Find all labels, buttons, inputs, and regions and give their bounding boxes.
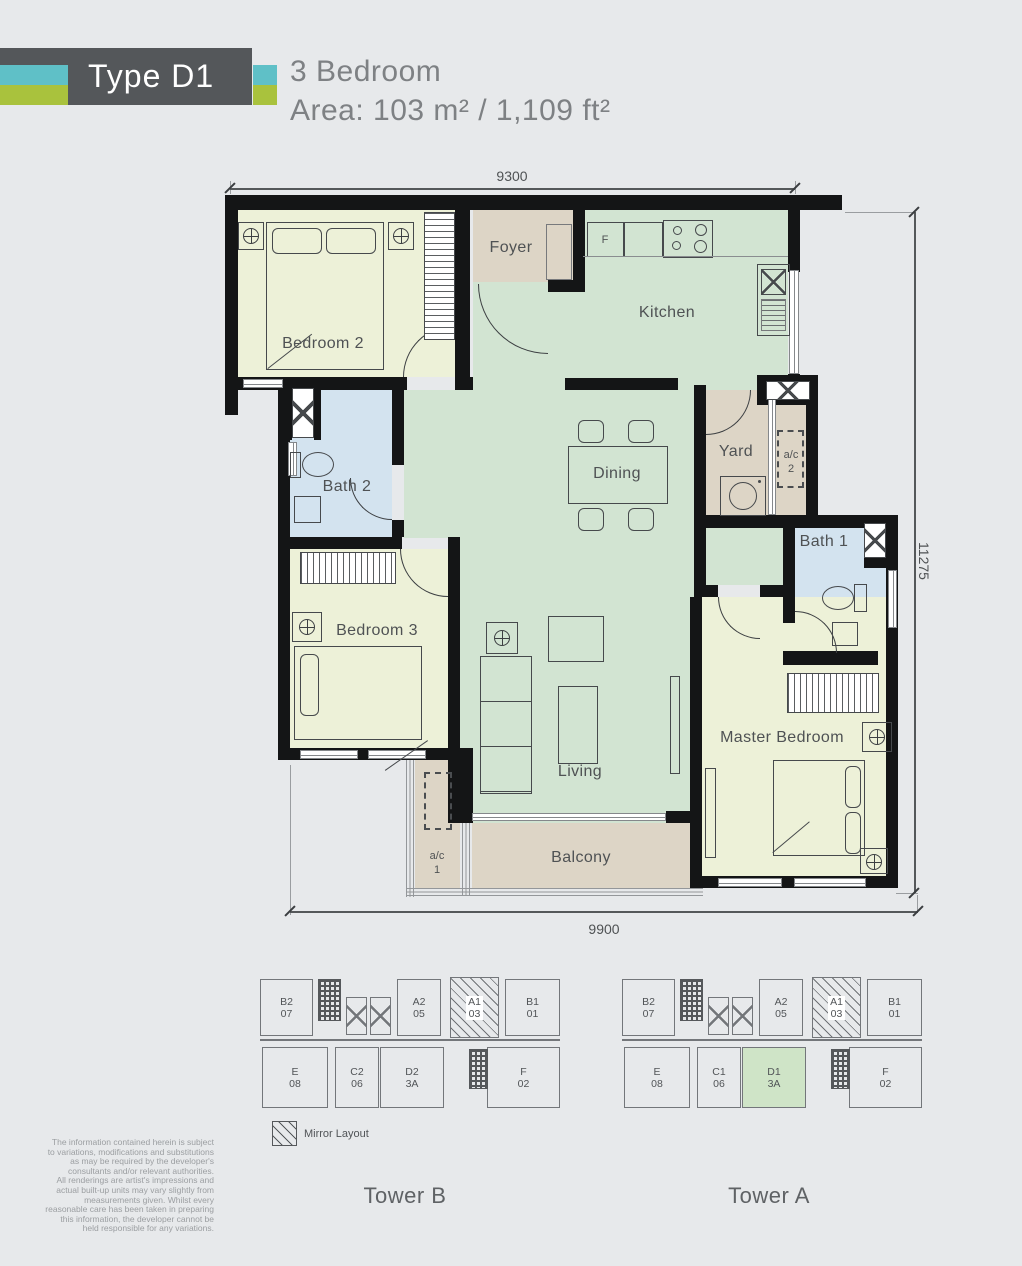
lime-stripe-left [0, 85, 68, 105]
toilet-bath2 [302, 452, 334, 477]
sink-bath1 [832, 622, 858, 646]
pillow [272, 228, 322, 254]
keyplan-unit-f: F02 [849, 1047, 922, 1108]
ac2-number: 2 [788, 463, 794, 475]
keyplan-unit-a1: A103 [450, 977, 499, 1038]
ac1-rail-bottom [406, 888, 464, 897]
coffee-table [558, 686, 598, 764]
mirror-layout-label: Mirror Layout [304, 1128, 369, 1140]
pillow [845, 812, 861, 854]
ac2-label: a/c [784, 449, 799, 461]
washer-drum [729, 482, 757, 510]
keyplan-unit-label: F02 [880, 1066, 892, 1090]
bath1-label: Bath 1 [800, 533, 849, 551]
window [794, 878, 866, 887]
wall [283, 388, 292, 440]
wall [278, 549, 290, 760]
kitchen-label: Kitchen [639, 304, 695, 322]
wall [783, 515, 795, 623]
lime-stripe-right [253, 85, 277, 105]
window [368, 750, 426, 759]
wall [225, 195, 842, 210]
yard-label: Yard [719, 443, 753, 461]
shaft-icon [766, 381, 810, 400]
teal-stripe-right [253, 65, 277, 85]
toilet-bath1 [822, 586, 854, 610]
wall [455, 210, 470, 377]
keyplan-unit-d2: D23A [380, 1047, 444, 1108]
mirror-layout-swatch [272, 1121, 297, 1146]
armchair [548, 616, 604, 662]
keyplan-unit-label: A205 [775, 996, 788, 1020]
keyplan-unit-label: A205 [413, 996, 426, 1020]
stair-icon [469, 1049, 488, 1089]
wardrobe-bedroom2 [424, 212, 455, 340]
wall [760, 585, 795, 597]
wall [666, 811, 690, 823]
keyplan-corridor [260, 1039, 560, 1041]
stair-icon [318, 979, 341, 1021]
toilet-tank [290, 452, 301, 478]
keyplan-unit-b1: B101 [867, 979, 922, 1036]
drainboard [761, 299, 786, 331]
dim-extension [845, 212, 915, 213]
wall [314, 388, 321, 440]
keyplan-unit-label: E08 [651, 1066, 663, 1090]
ac1-rail-left [406, 757, 415, 897]
wall [690, 597, 702, 888]
wall [565, 378, 678, 390]
sofa [480, 656, 532, 794]
window [718, 878, 782, 887]
disclaimer-line: held responsible for any variations. [28, 1224, 214, 1234]
ac1-label: a/c [430, 850, 445, 862]
wardrobe-master [787, 673, 879, 713]
dim-line-top [230, 188, 795, 190]
keyplan-unit-b2: B207 [622, 979, 675, 1036]
counter-edge [583, 256, 788, 257]
ac-unit-1 [424, 772, 452, 830]
elevator-icon [732, 997, 753, 1035]
keyplan-unit-b2: B207 [260, 979, 313, 1036]
keyplan-unit-label: B101 [888, 996, 901, 1020]
keyplan-unit-label: E08 [289, 1066, 301, 1090]
fridge-label: F [602, 234, 609, 246]
dining-label: Dining [593, 465, 641, 483]
keyplan-unit-label: D23A [405, 1066, 418, 1090]
lamp-icon [494, 630, 510, 646]
lamp-icon [866, 854, 882, 870]
wall [448, 537, 460, 811]
balcony-rail-left [462, 823, 471, 895]
wall [806, 390, 818, 528]
teal-stripe-left [0, 65, 68, 85]
wall [788, 210, 800, 272]
dining-chair [628, 508, 654, 531]
window [789, 270, 799, 374]
kitchen-counter [624, 222, 663, 257]
lamp-icon [299, 619, 315, 635]
keyplan-unit-label: F02 [518, 1066, 530, 1090]
foyer-label: Foyer [490, 239, 533, 257]
keyplan-unit-label: C206 [350, 1066, 363, 1090]
pillow [300, 654, 319, 716]
wall [278, 537, 402, 549]
elevator-icon [370, 997, 391, 1035]
keyplan-unit-a1: A103 [812, 977, 861, 1038]
wall [455, 377, 473, 390]
wall [783, 651, 878, 665]
sink-basin [761, 269, 786, 295]
burner [694, 240, 707, 253]
washer-knob [758, 480, 761, 483]
living-label: Living [558, 763, 602, 781]
dim-top-value: 9300 [496, 168, 527, 184]
dining-chair [628, 420, 654, 443]
dining-chair [578, 508, 604, 531]
tower-name-label: Tower B [364, 1183, 447, 1209]
keyplan-unit-label: C106 [712, 1066, 725, 1090]
hall2-area [694, 528, 783, 585]
dim-bottom-value: 9900 [588, 921, 619, 937]
balcony-rail-bottom [460, 888, 703, 897]
wall [694, 585, 718, 597]
keyplan-unit-label: D13A [767, 1066, 780, 1090]
wall [694, 385, 706, 528]
keyplan-unit-d1: D13A [742, 1047, 806, 1108]
window [243, 379, 283, 388]
lamp-icon [243, 228, 259, 244]
pillow [845, 766, 861, 808]
burner [673, 226, 682, 235]
wall [548, 280, 585, 292]
keyplan-unit-label: B207 [642, 996, 655, 1020]
pillow [326, 228, 376, 254]
keyplan-unit-f: F02 [487, 1047, 560, 1108]
keyplan-unit-label: A103 [466, 996, 483, 1020]
elevator-icon [708, 997, 729, 1035]
wardrobe-bedroom3 [300, 552, 396, 584]
keyplan-unit-c2: C206 [335, 1047, 379, 1108]
lamp-icon [869, 729, 885, 745]
area-label: Area: 103 m² / 1,109 ft² [290, 94, 610, 128]
keyplan-corridor [622, 1039, 922, 1041]
dim-extension [290, 765, 291, 915]
shower-bath2 [292, 388, 314, 438]
keyplan-unit-e: E08 [262, 1047, 328, 1108]
stair-icon [831, 1049, 850, 1089]
balcony-label: Balcony [551, 849, 611, 867]
wall [392, 390, 404, 465]
disclaimer-text: The information contained herein is subj… [28, 1138, 214, 1234]
tv-console [670, 676, 680, 774]
floorplan-page: Type D1 3 Bedroom Area: 103 m² / 1,109 f… [0, 0, 1022, 1266]
bath2-label: Bath 2 [323, 478, 372, 496]
window [768, 390, 776, 515]
keyplan-unit-a2: A205 [397, 979, 441, 1036]
keyplan-unit-c1: C106 [697, 1047, 741, 1108]
toilet-tank [854, 584, 867, 612]
dresser-master [705, 768, 716, 858]
keyplan-unit-label: A103 [828, 996, 845, 1020]
lamp-icon [393, 228, 409, 244]
keyplan-unit-b1: B101 [505, 979, 560, 1036]
dim-line-bottom [290, 911, 918, 913]
keyplan-unit-label: B207 [280, 996, 293, 1020]
ac1-number: 1 [434, 864, 440, 876]
bedroom2-label: Bedroom 2 [282, 335, 364, 353]
elevator-icon [346, 997, 367, 1035]
master-bedroom-label: Master Bedroom [720, 729, 844, 747]
sink-bath2 [294, 496, 321, 523]
stair-icon [680, 979, 703, 1021]
bedroom-count: 3 Bedroom [290, 55, 441, 89]
window [300, 750, 358, 759]
keyplan-unit-label: B101 [526, 996, 539, 1020]
shower-bath1 [864, 523, 886, 558]
keyplan-unit-e: E08 [624, 1047, 690, 1108]
foyer-closet [546, 224, 572, 280]
dining-chair [578, 420, 604, 443]
window [472, 813, 666, 821]
keyplan-unit-a2: A205 [759, 979, 803, 1036]
burner [695, 224, 707, 236]
burner [672, 241, 681, 250]
wall [392, 520, 404, 537]
tower-name-label: Tower A [728, 1183, 810, 1209]
bedroom3-label: Bedroom 3 [336, 622, 418, 640]
dim-right-value: 11275 [916, 542, 932, 580]
window [888, 570, 897, 628]
type-label: Type D1 [88, 58, 214, 95]
